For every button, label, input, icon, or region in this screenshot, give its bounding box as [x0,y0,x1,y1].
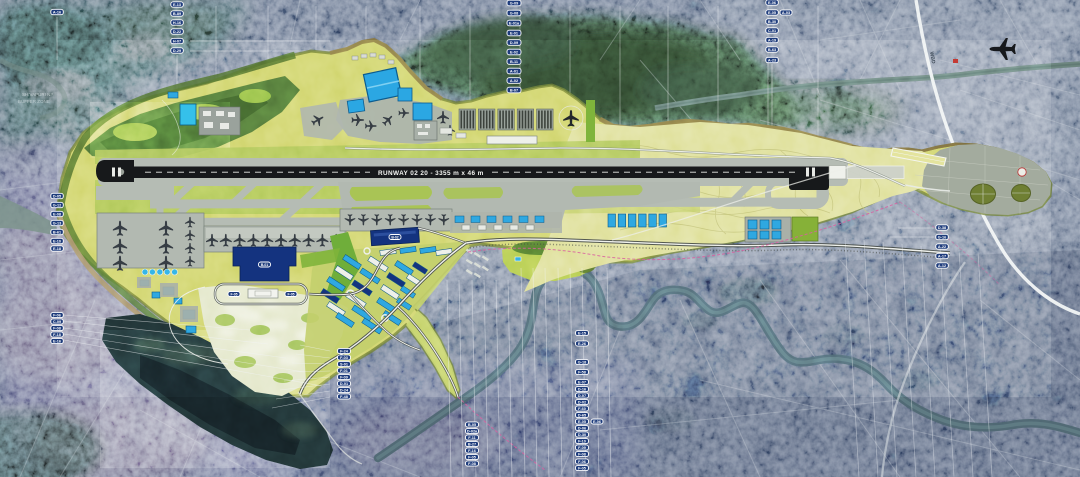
svg-text:F-05: F-05 [288,292,295,296]
svg-text:A-19: A-19 [768,38,776,42]
svg-text:F-11: F-11 [468,436,476,440]
svg-text:F-16: F-16 [468,449,476,453]
svg-text:B-61: B-61 [53,230,61,234]
svg-text:E-15: E-15 [578,331,586,335]
svg-text:RUNWAY 02 20 - 3355 m x 46 m: RUNWAY 02 20 - 3355 m x 46 m [378,170,484,177]
svg-text:SHIVAPURI NP: SHIVAPURI NP [22,92,53,97]
svg-text:E-06: E-06 [768,1,776,5]
svg-text:BUFFER ZONE: BUFFER ZONE [18,99,50,104]
svg-text:G-09: G-09 [510,1,518,5]
svg-text:E-10: E-10 [53,239,61,243]
svg-text:F-09: F-09 [578,446,586,450]
svg-text:D-29: D-29 [173,49,181,53]
svg-text:F-06: F-06 [578,460,586,464]
svg-text:E-02: E-02 [510,50,518,54]
svg-text:E-18: E-18 [53,247,61,251]
svg-text:A-03: A-03 [782,11,790,15]
svg-text:D-65: D-65 [578,413,586,417]
svg-text:D-16: D-16 [578,387,586,391]
svg-text:E-13: E-13 [173,3,181,7]
svg-text:E-06: E-06 [593,420,601,424]
svg-text:F-05: F-05 [578,466,586,470]
svg-text:C-01: C-01 [768,29,776,33]
svg-text:B-02: B-02 [391,235,398,239]
svg-text:H-16: H-16 [173,21,181,25]
svg-text:A-16: A-16 [53,10,61,14]
svg-text:F-01: F-01 [340,369,348,373]
svg-text:E-05: E-05 [578,420,586,424]
svg-text:D-30: D-30 [578,433,586,437]
svg-text:A-02: A-02 [510,79,518,83]
svg-text:D-01: D-01 [340,382,348,386]
svg-text:D-06: D-06 [578,426,586,430]
svg-text:F-05: F-05 [231,292,238,296]
svg-text:H-07: H-07 [173,39,181,43]
svg-text:B-11: B-11 [510,60,518,64]
svg-text:F-09: F-09 [340,375,348,379]
svg-text:A-17: A-17 [938,254,946,258]
svg-text:F-03: F-03 [340,356,348,360]
svg-text:F-05: F-05 [468,455,476,459]
svg-text:E-26: E-26 [578,342,586,346]
svg-text:B-01: B-01 [261,263,268,267]
svg-text:C-09: C-09 [53,320,61,324]
svg-text:A-12: A-12 [938,264,946,268]
svg-text:F-18: F-18 [53,333,61,337]
svg-text:G-16: G-16 [938,235,946,239]
svg-text:D-24: D-24 [340,388,349,392]
svg-text:G-08: G-08 [510,11,518,15]
svg-text:E-07: E-07 [578,380,586,384]
svg-text:A-23: A-23 [768,58,776,62]
svg-text:A-01: A-01 [510,69,518,73]
svg-text:F-48: F-48 [340,395,348,399]
svg-text:B-07: B-07 [510,88,518,92]
svg-text:D-22: D-22 [173,30,181,34]
svg-text:F-10: F-10 [578,439,586,443]
svg-text:D-02: D-02 [578,400,586,404]
svg-text:D-05: D-05 [53,194,61,198]
svg-text:F-24: F-24 [340,349,349,353]
svg-text:G-18: G-18 [578,360,586,364]
svg-text:B-30: B-30 [768,20,776,24]
svg-text:G-12: G-12 [53,203,61,207]
svg-text:E-01a: E-01a [509,21,520,25]
svg-text:F-06: F-06 [53,313,61,317]
svg-text:A-22: A-22 [938,245,946,249]
svg-text:E-16: E-16 [53,339,61,343]
svg-text:B-89: B-89 [173,12,181,16]
svg-text:D-38: D-38 [938,226,946,230]
svg-text:E-05: E-05 [768,11,776,15]
svg-text:D-07: D-07 [578,394,586,398]
svg-text:D-02a: D-02a [467,429,478,433]
svg-text:E-08: E-08 [53,212,61,216]
svg-text:B-63: B-63 [768,48,776,52]
svg-text:F-08: F-08 [468,462,476,466]
svg-text:F-60: F-60 [578,407,586,411]
svg-text:E-01: E-01 [510,31,518,35]
svg-text:F-58: F-58 [578,370,586,374]
svg-text:F-08: F-08 [578,452,586,456]
svg-text:B-05: B-05 [468,423,476,427]
svg-text:F-08: F-08 [53,326,61,330]
svg-text:S-01: S-01 [340,362,348,366]
svg-text:G-13: G-13 [53,221,61,225]
svg-text:B-27: B-27 [468,442,476,446]
svg-text:D-09: D-09 [510,41,518,45]
